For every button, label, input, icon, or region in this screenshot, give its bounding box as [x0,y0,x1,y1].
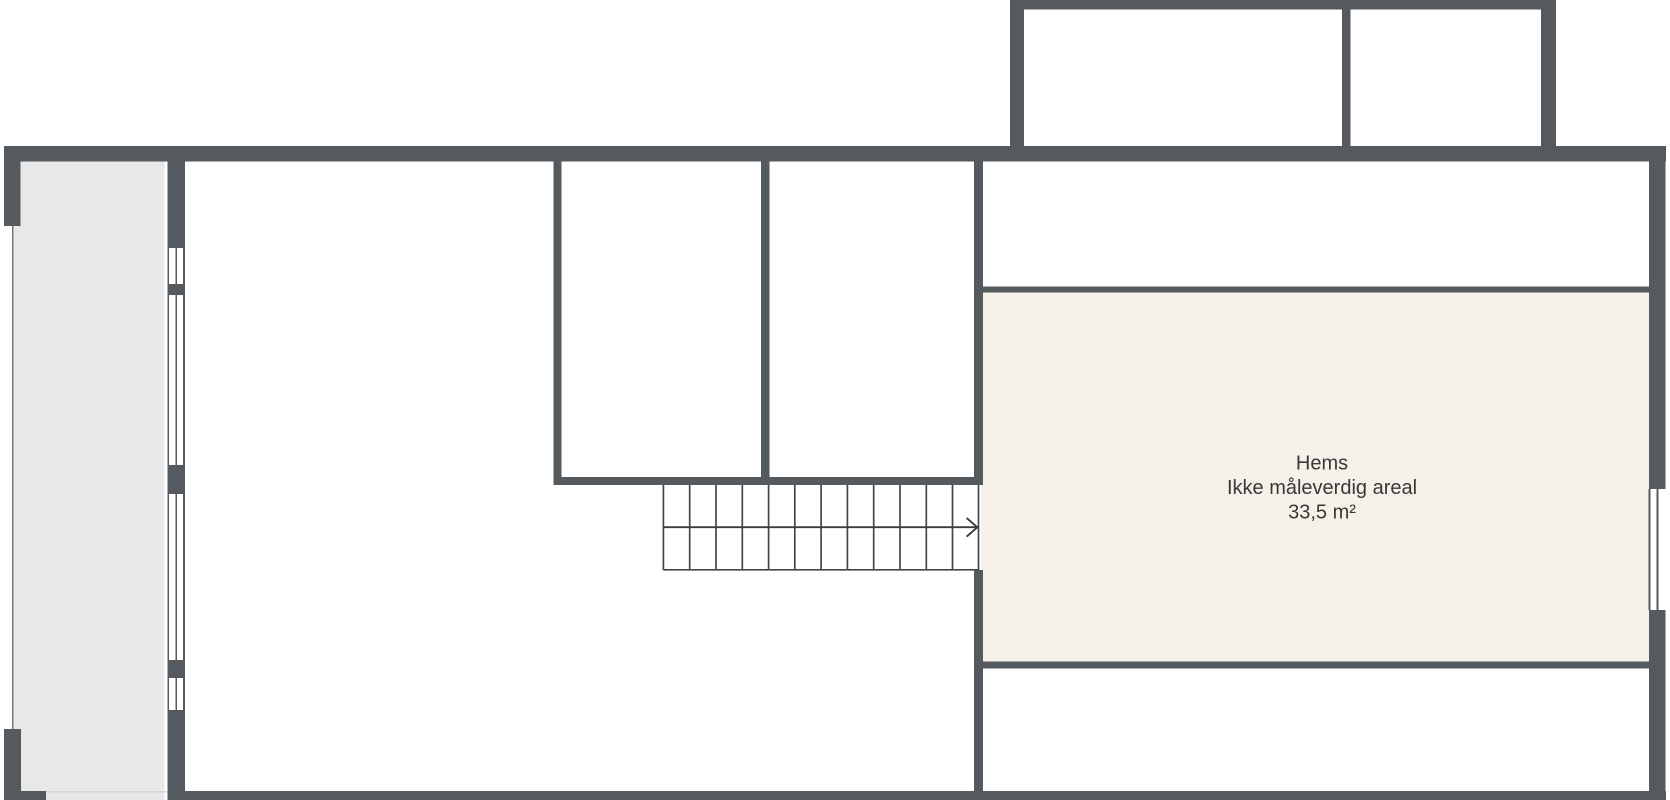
svg-text:Hems: Hems [1296,453,1348,475]
svg-text:33,5 m²: 33,5 m² [1288,502,1356,524]
svg-text:Ikke måleverdig areal: Ikke måleverdig areal [1227,477,1417,499]
